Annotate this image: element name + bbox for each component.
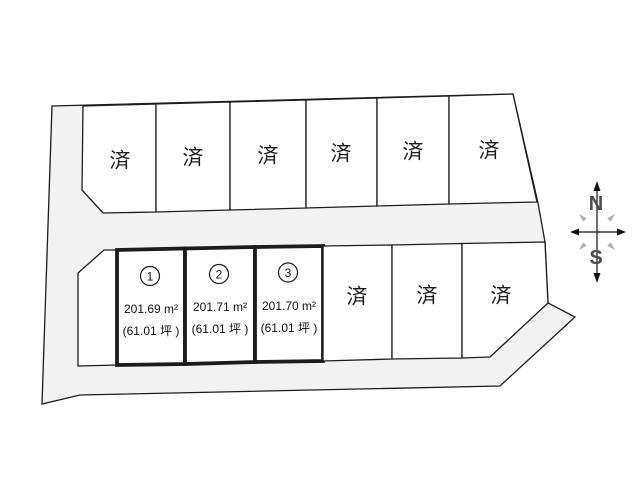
lot-1-area-tsubo: (61.01 坪 ) [123,324,180,338]
lot-bottom-1: 済 [323,245,392,361]
land-plot-diagram: 済 済 済 済 済 済 1 201.69 m² (6 [0,0,640,480]
lot-3-area-m2: 201.70 m² [262,299,316,313]
lot-top-6: 済 [449,94,537,204]
lot-2-area-tsubo: (61.01 坪 ) [192,322,249,336]
lot-top-2: 済 [156,102,230,212]
compass-northeast-tick-icon [607,214,615,222]
lot-3: 3 201.70 m² (61.01 坪 ) [255,246,323,362]
lot-top-3: 済 [230,100,306,210]
lot-1: 1 201.69 m² (61.01 坪 ) [117,249,185,366]
compass-south-arrowhead [594,273,601,283]
compass-south-label: S [589,247,602,269]
lot-top-3-sold-label: 済 [258,145,279,168]
compass-northwest-tick-icon [579,214,587,222]
lot-3-area-tsubo: (61.01 坪 ) [261,321,318,335]
lot-bottom-2: 済 [392,244,462,360]
numbered-lots: 1 201.69 m² (61.01 坪 ) 2 201.71 m² (61.0… [117,246,323,365]
lot-bottom-3-sold-label: 済 [491,285,512,308]
compass-southeast-tick-icon [607,242,615,250]
lot-top-5: 済 [377,96,449,206]
lot-2-area-m2: 201.71 m² [193,300,247,314]
lot-top-2-sold-label: 済 [183,147,204,170]
lot-3-number: 3 [285,266,292,280]
site-plan-svg: 済 済 済 済 済 済 1 201.69 m² (6 [0,0,640,480]
lot-2: 2 201.71 m² (61.01 坪 ) [185,247,255,364]
lot-top-6-sold-label: 済 [479,140,500,163]
top-row: 済 済 済 済 済 済 [82,94,537,213]
compass-north-label: N [589,193,603,215]
lot-bottom-2-sold-label: 済 [417,285,438,308]
lot-top-1: 済 [82,104,156,213]
lot-2-number: 2 [216,268,223,282]
compass-north-arrowhead [594,181,601,191]
lot-top-1-sold-label: 済 [110,150,131,173]
lot-bottom-1-sold-label: 済 [347,286,368,309]
compass-southwest-tick-icon [579,242,587,250]
unlabeled-parcel-shape [78,250,118,366]
compass-west-arrowhead [570,229,579,236]
lot-top-4-sold-label: 済 [331,143,352,166]
lot-top-5-sold-label: 済 [403,141,424,164]
lot-top-4: 済 [306,98,377,208]
lot-1-area-m2: 201.69 m² [124,302,178,316]
compass: N S [570,181,626,283]
lot-1-number: 1 [147,270,154,284]
compass-east-arrowhead [617,229,626,236]
